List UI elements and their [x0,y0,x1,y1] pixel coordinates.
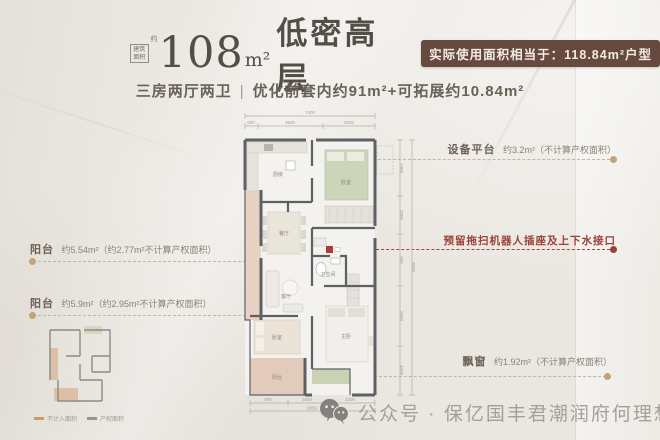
leader-dot [604,373,611,380]
svg-text:1800: 1800 [399,163,404,174]
legend-swatch-gray [87,417,97,420]
bedroom-top-bed [325,150,373,223]
svg-text:3000: 3000 [344,120,355,125]
svg-text:主卧: 主卧 [341,333,351,340]
svg-text:卫生间: 卫生间 [320,271,335,278]
header: 建筑 面积 约 108 m² 低密高层 实际使用面积相当于：118.84m²户型 [130,30,660,76]
annotation-balcony-1: 阳台 约5.54m²（约2.77m²不计算产权面积） [30,240,216,258]
svg-text:2000: 2000 [399,210,404,221]
dimension-labels-top: 7400 900 3500 3000 [247,110,354,125]
leader-dot [29,258,36,265]
footer-watermark: 公众号 · 保亿国丰君潮润府何理想 [318,398,660,426]
area-type-box: 建筑 面积 [130,44,149,63]
wechat-account-text: 公众号 · 保亿国丰君潮润府何理想 [358,399,660,426]
floorplan-svg: 7400 900 3500 3000 [228,106,428,416]
area-unit: m² [245,49,271,71]
area-box-line2: 面积 [131,54,148,62]
legend-item: 不计入面积 [34,414,77,423]
wechat-icon [318,398,350,426]
balcony-left [245,190,261,320]
svg-text:900: 900 [399,256,404,264]
leader-dot [29,312,36,319]
keyplan-svg [36,320,136,412]
subtitle-separator: | [232,83,253,100]
dimension-lines-top [245,113,375,129]
annotation-value: 约5.9m²（约2.95m²不计算产权面积） [61,299,211,309]
svg-text:餐厅: 餐厅 [279,230,289,237]
svg-text:卧室: 卧室 [272,334,282,341]
svg-text:4000: 4000 [399,365,404,376]
annotation-label: 阳台 [30,244,54,256]
annotation-label: 飘窗 [463,356,487,368]
svg-text:3500: 3500 [285,120,296,125]
keyplan-legend: 不计入面积 产权面积 [34,414,124,423]
annotation-balcony-2: 阳台 约5.9m²（约2.95m²不计算产权面积） [30,294,211,312]
bay-window-green [312,369,350,384]
keyplan-highlight-1 [50,348,58,380]
leader-line [38,315,246,316]
area-approx-label: 约 [151,34,158,44]
legend-label: 产权面积 [100,414,124,423]
leader-dot-red [610,246,617,253]
annotation-robot-socket: 预留拖扫机器人插座及上下水接口 [444,231,617,249]
annotation-value: 约5.54m²（约2.77m²不计算产权面积） [61,245,216,255]
subtitle: 三房两厅两卫|优化前套内约91m²+可拓展约10.84m² [0,80,660,101]
area-box-line1: 建筑 [131,46,148,54]
svg-text:卧室: 卧室 [341,179,351,186]
svg-text:客厅: 客厅 [281,293,291,300]
equipment-platform-outline [377,146,393,174]
svg-text:厨房: 厨房 [273,171,283,178]
subtitle-layout: 三房两厅两卫 [136,83,232,100]
svg-text:9500: 9500 [411,262,416,273]
dimension-labels-right: 1800 2000 900 2000 4000 9500 [399,163,416,376]
svg-text:7400: 7400 [305,110,316,115]
subtitle-areas: 优化前套内约91m²+可拓展约10.84m² [253,83,525,100]
legend-label: 不计入面积 [47,414,77,423]
svg-text:2000: 2000 [399,311,404,322]
annotation-label: 预留拖扫机器人插座及上下水接口 [444,235,617,247]
svg-text:900: 900 [264,397,272,402]
annotation-label: 阳台 [30,298,54,310]
annotation-value: 约3.2m²（不计算产权面积） [503,145,616,155]
svg-text:6850: 6850 [307,406,318,411]
leader-line [38,261,246,262]
svg-text:3000: 3000 [302,397,313,402]
annotation-value: 约1.92m²（不计算产权面积） [494,357,612,367]
svg-text:900: 900 [247,120,255,125]
legend-swatch-tan [34,417,44,420]
svg-text:阳台: 阳台 [272,374,282,381]
annotation-equipment-platform: 设备平台 约3.2m²（不计算产权面积） [448,140,616,158]
equivalent-area-badge: 实际使用面积相当于：118.84m²户型 [421,40,660,67]
legend-item: 产权面积 [87,414,124,423]
annotation-bay-window: 飘窗 约1.92m²（不计算产权面积） [463,352,612,370]
leader-dot [610,156,617,163]
annotation-label: 设备平台 [448,144,496,156]
area-number: 108 [159,31,244,75]
